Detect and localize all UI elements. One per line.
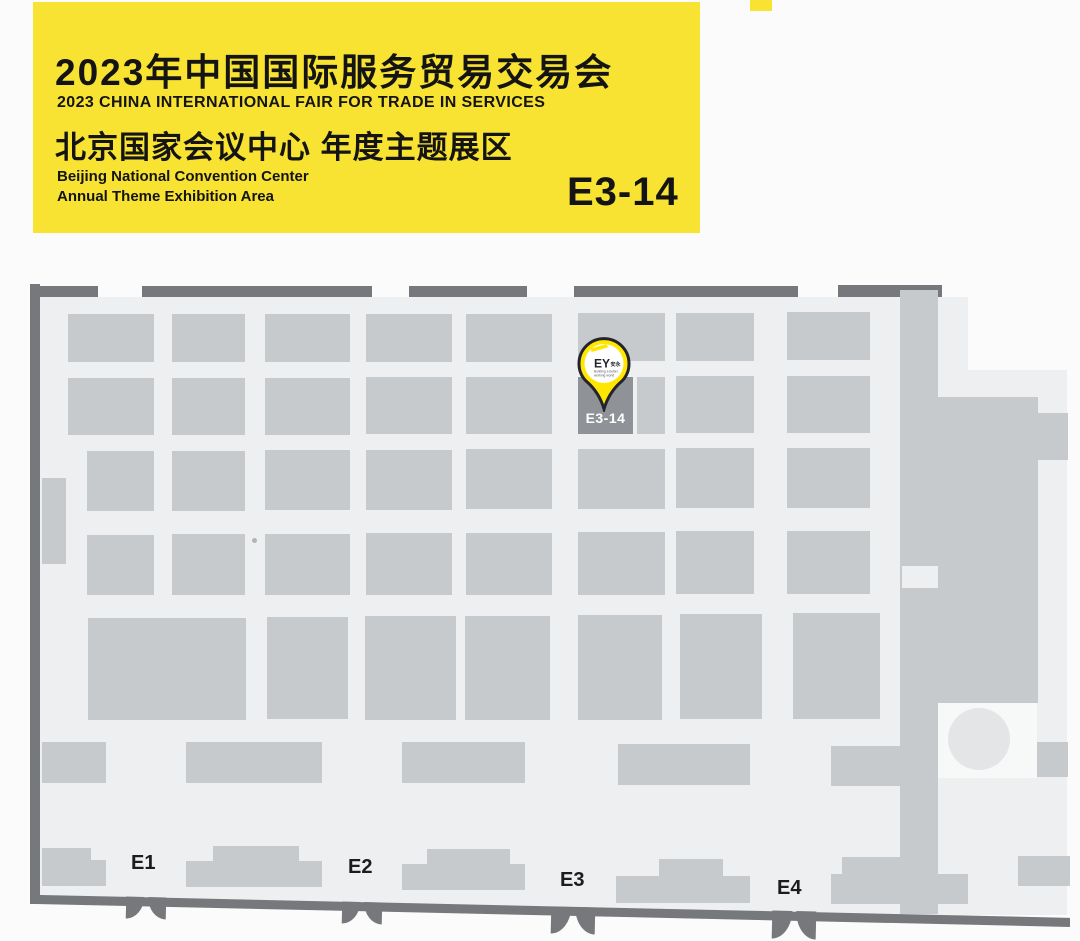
door-leaf-icon: [342, 902, 361, 924]
structure-block: [1035, 742, 1068, 777]
venue-title-cn: 北京国家会议中心 年度主题展区: [55, 122, 513, 167]
booth-block: [172, 378, 245, 435]
booth-block: [466, 377, 552, 434]
utility-area: [938, 703, 1037, 778]
floor-gap: [902, 566, 938, 588]
booth-block: [465, 616, 550, 720]
entrance-label-e2: E2: [348, 856, 372, 879]
booth-number: E3-14: [567, 170, 679, 215]
booth-block: [466, 314, 552, 362]
booth-block: [793, 613, 880, 719]
booth-block: [680, 614, 762, 719]
booth-block: [68, 378, 154, 435]
entrance-bump: [842, 857, 902, 875]
booth-block: [676, 313, 754, 361]
location-pin-icon: EY 安永 Building a better working world: [570, 334, 638, 412]
booth-block: [87, 535, 154, 595]
pin-logo-cjk: 安永: [611, 361, 622, 368]
booth-block: [172, 451, 245, 511]
entrance-bump: [831, 874, 968, 904]
booth-block: [787, 376, 870, 433]
banner-fragment: [750, 0, 772, 11]
artifact-dot: [252, 538, 257, 543]
booth-block: [172, 534, 245, 595]
booth-block: [366, 377, 452, 434]
booth-block: [366, 314, 452, 362]
door-leaf-icon: [796, 911, 817, 939]
structure-block: [938, 397, 1038, 703]
booth-block: [87, 451, 154, 511]
venue-en-line2: Annual Theme Exhibition Area: [57, 187, 309, 207]
structure-block: [1038, 413, 1068, 460]
booth-block: [787, 312, 870, 360]
entrance-door-icon-e2: [342, 902, 383, 925]
left-wall: [30, 284, 40, 904]
booth-block: [676, 448, 754, 508]
booth-block: [68, 314, 154, 362]
booth-block: [265, 534, 350, 595]
booth-block: [787, 531, 870, 594]
entrance-bump: [42, 860, 106, 886]
booth-block: [265, 450, 350, 510]
event-banner: 2023年中国国际服务贸易交易会 2023 CHINA INTERNATIONA…: [33, 2, 700, 233]
top-wall-segment: [409, 286, 527, 297]
wall-band: [900, 290, 938, 914]
entrance-bump: [659, 859, 723, 877]
pin-logo-ey: EY: [594, 357, 610, 371]
booth-block: [676, 531, 754, 594]
structure-block: [1018, 856, 1070, 886]
door-leaf-icon: [575, 907, 596, 934]
entrance-label-e1: E1: [131, 852, 155, 875]
entrance-label-e3: E3: [560, 869, 584, 892]
booth-block: [402, 742, 525, 783]
door-leaf-icon: [126, 897, 145, 919]
top-wall-segment: [574, 286, 798, 297]
booth-block: [172, 314, 245, 362]
booth-block: [787, 448, 870, 508]
entrance-bump: [427, 849, 510, 865]
entrance-bump: [186, 861, 322, 887]
event-title-cn: 2023年中国国际服务贸易交易会: [55, 42, 613, 96]
entrance-door-icon-e1: [126, 897, 167, 920]
door-leaf-icon: [364, 902, 383, 924]
booth-block: [466, 449, 552, 509]
venue-title-en: Beijing National Convention Center Annua…: [57, 167, 309, 207]
booth-block: [88, 618, 246, 720]
booth-block: [366, 533, 452, 595]
highlighted-booth-label: E3-14: [576, 410, 635, 426]
booth-block: [578, 615, 662, 720]
event-title-en: 2023 CHINA INTERNATIONAL FAIR FOR TRADE …: [57, 94, 545, 112]
booth-block: [186, 742, 322, 783]
entrance-door-icon-e3: [551, 906, 596, 934]
booth-block: [578, 449, 665, 509]
booth-block: [42, 742, 106, 783]
entrance-label-e4: E4: [777, 877, 801, 900]
column-circle: [948, 708, 1010, 770]
booth-block: [676, 376, 754, 433]
top-wall-segment: [142, 286, 372, 297]
entrance-bump: [616, 876, 750, 903]
pin-tagline-2: working world: [594, 374, 614, 378]
door-leaf-icon: [551, 906, 572, 933]
booth-block: [578, 532, 665, 595]
booth-block: [365, 616, 456, 720]
booth-block: [265, 314, 350, 362]
entrance-bump: [402, 864, 525, 890]
booth-block: [267, 617, 348, 719]
door-leaf-icon: [148, 897, 167, 919]
booth-block: [42, 478, 66, 564]
booth-block: [366, 450, 452, 510]
entrance-bump: [213, 846, 299, 862]
entrance-door-icon-e4: [772, 910, 817, 939]
booth-block: [618, 744, 750, 785]
booth-block: [637, 377, 665, 434]
booth-block: [466, 533, 552, 595]
venue-en-line1: Beijing National Convention Center: [57, 167, 309, 187]
top-wall-segment: [40, 286, 98, 297]
booth-block: [265, 378, 350, 435]
door-leaf-icon: [772, 910, 793, 938]
